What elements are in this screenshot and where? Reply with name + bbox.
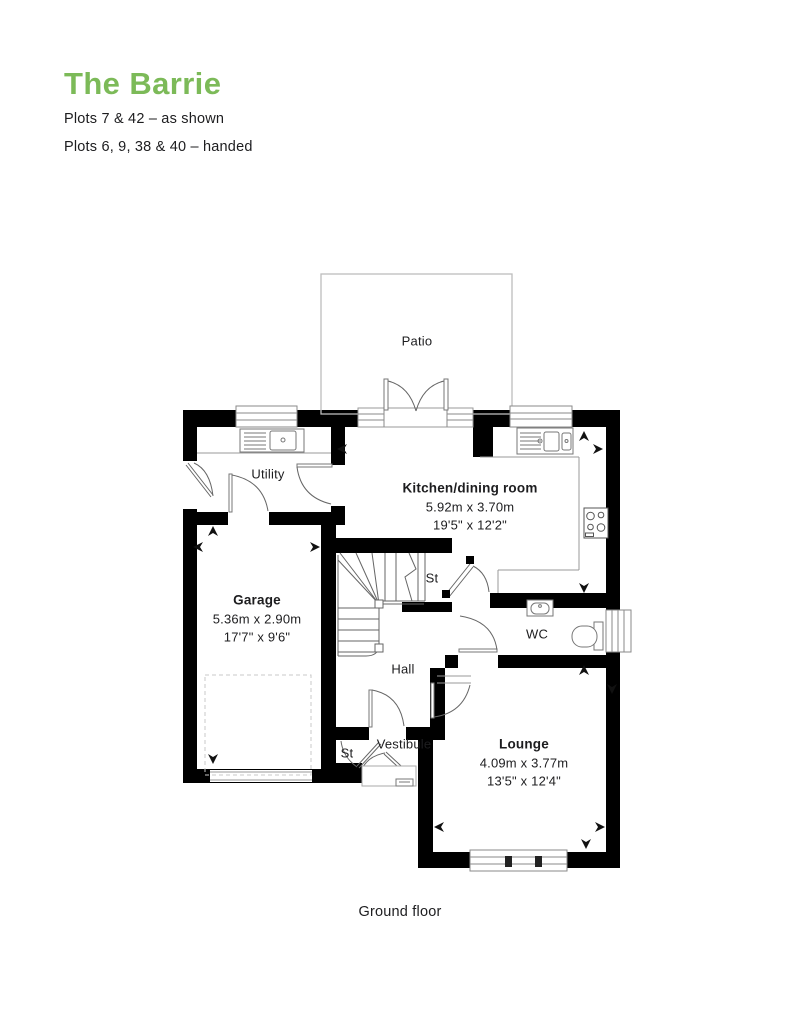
window-wc xyxy=(606,610,631,652)
lounge-door xyxy=(431,676,471,718)
garage-label: Garage xyxy=(233,593,281,608)
lounge-imperial: 13'5" x 12'4" xyxy=(487,774,561,789)
window-lounge xyxy=(470,850,567,871)
front-door xyxy=(362,752,416,786)
lounge-label: Lounge xyxy=(499,737,549,752)
st-upper-label: St xyxy=(426,571,439,586)
hall-label: Hall xyxy=(391,662,414,677)
floor-label: Ground floor xyxy=(359,904,442,920)
vestibule-label: Vestibule xyxy=(377,737,432,752)
patio-label: Patio xyxy=(402,334,433,349)
kitchen-hall-door xyxy=(442,556,489,598)
floorplan-graphics xyxy=(0,0,800,1036)
st-lower-label: St xyxy=(341,746,354,761)
wc-basin xyxy=(527,600,553,616)
kitchen-sink xyxy=(517,428,573,454)
lounge-metric: 4.09m x 3.77m xyxy=(480,756,569,771)
stairs xyxy=(338,553,425,656)
garage-door-outline xyxy=(205,675,311,775)
garage-imperial: 17'7" x 9'6" xyxy=(224,630,290,645)
wc-toilet xyxy=(572,622,603,650)
hob xyxy=(584,508,608,538)
kitchen-label: Kitchen/dining room xyxy=(402,481,537,496)
window-kitchen xyxy=(510,406,572,427)
wc-label: WC xyxy=(526,627,548,642)
kitchen-metric: 5.92m x 3.70m xyxy=(426,500,515,515)
kitchen-imperial: 19'5" x 12'2" xyxy=(433,518,507,533)
wc-door xyxy=(459,616,497,652)
patio-door xyxy=(358,379,473,427)
utility-kitchen-door xyxy=(297,464,332,504)
floorplan-page: { "colors": { "accent": "#7cba58", "wall… xyxy=(0,0,800,1036)
utility-sink xyxy=(197,429,331,453)
window-utility xyxy=(236,406,297,427)
utility-label: Utility xyxy=(251,467,284,482)
garage-metric: 5.36m x 2.90m xyxy=(213,612,302,627)
vestibule-hall-door xyxy=(369,690,404,727)
